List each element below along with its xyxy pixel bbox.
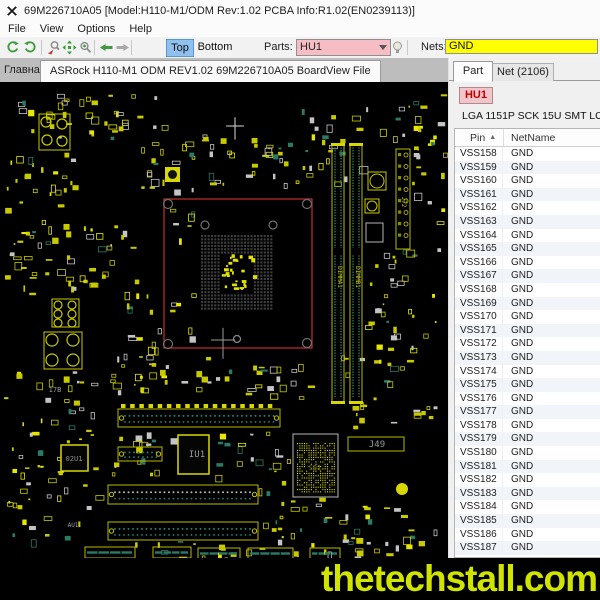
table-row[interactable]: VSS167GND — [455, 269, 600, 283]
parts-label: Parts: — [264, 37, 293, 58]
table-row[interactable]: VSS176GND — [455, 392, 600, 406]
table-row[interactable]: VSS171GND — [455, 324, 600, 338]
table-row[interactable]: VSS181GND — [455, 460, 600, 474]
column-netname[interactable]: NetName — [504, 129, 555, 146]
svg-text:AU1: AU1 — [68, 522, 79, 529]
table-row[interactable]: VSS163GND — [455, 215, 600, 229]
part-ref-badge[interactable]: HU1 — [459, 87, 493, 104]
rotate-ccw-icon[interactable] — [4, 39, 21, 56]
fit-view-icon[interactable] — [61, 39, 78, 56]
parts-value: HU1 — [300, 41, 322, 53]
svg-text:J49: J49 — [369, 440, 385, 450]
board-view[interactable]: IU102U1J49AU117BSB1DIMMA1DIMMB1J72 — [0, 82, 448, 600]
table-row[interactable]: VSS182GND — [455, 473, 600, 487]
svg-text:J72: J72 — [400, 197, 407, 208]
panel-tab-part[interactable]: Part — [453, 61, 493, 82]
zoom-part-icon[interactable] — [77, 39, 94, 56]
table-row[interactable]: VSS161GND — [455, 188, 600, 202]
table-row[interactable]: VSS158GND — [455, 147, 600, 161]
table-row[interactable]: VSS159GND — [455, 161, 600, 175]
toolbar: Top Bottom Parts: HU1 Nets: — [0, 37, 600, 59]
app-icon — [6, 5, 18, 17]
table-header[interactable]: Pin ▲ NetName — [455, 129, 600, 147]
toolbar-separator — [94, 40, 95, 55]
table-row[interactable]: VSS178GND — [455, 419, 600, 433]
table-row[interactable]: VSS179GND — [455, 432, 600, 446]
watermark-band: thetechstall.com — [0, 558, 600, 600]
chevron-down-icon — [379, 45, 387, 50]
nets-input[interactable] — [445, 39, 598, 54]
pin-net-table[interactable]: Pin ▲ NetName VSS158GNDVSS159GNDVSS160GN… — [454, 128, 600, 558]
svg-text:IU1: IU1 — [189, 450, 205, 460]
table-row[interactable]: VSS174GND — [455, 365, 600, 379]
table-row[interactable]: VSS160GND — [455, 174, 600, 188]
table-row[interactable]: VSS164GND — [455, 229, 600, 243]
table-row[interactable]: VSS175GND — [455, 378, 600, 392]
table-row[interactable]: VSS180GND — [455, 446, 600, 460]
history-back-icon[interactable] — [98, 39, 115, 56]
menu-help[interactable]: Help — [123, 23, 158, 35]
svg-text:DIMMA1: DIMMA1 — [336, 266, 343, 288]
tab-boardview-file[interactable]: ASRock H110-M1 ODM REV1.02 69M226710A05 … — [40, 60, 381, 82]
table-row[interactable]: VSS162GND — [455, 201, 600, 215]
side-panel: Part Net (2106) HU1 LGA 1151P SCK 15U SM… — [448, 58, 600, 600]
window-title: 69M226710A05 [Model:H110-M1/ODM Rev:1.02… — [24, 5, 415, 17]
table-row[interactable]: VSS165GND — [455, 242, 600, 256]
table-row[interactable]: VSS185GND — [455, 514, 600, 528]
top-layer-button[interactable]: Top — [166, 39, 194, 57]
tab-bar: Главная ASRock H110-M1 ODM REV1.02 69M22… — [0, 58, 448, 82]
svg-text:02U1: 02U1 — [66, 455, 83, 463]
menu-options[interactable]: Options — [71, 23, 121, 35]
table-row[interactable]: VSS170GND — [455, 310, 600, 324]
rotate-cw-icon[interactable] — [22, 39, 39, 56]
watermark-text: thetechstall.com — [321, 558, 600, 600]
pin-header-label: Pin — [470, 132, 485, 144]
table-row[interactable]: VSS166GND — [455, 256, 600, 270]
bottom-layer-button[interactable]: Bottom — [195, 39, 235, 55]
table-row[interactable]: VSS184GND — [455, 500, 600, 514]
table-row[interactable]: VSS172GND — [455, 337, 600, 351]
svg-text:17B: 17B — [49, 386, 62, 394]
app-window: 69M226710A05 [Model:H110-M1/ODM Rev:1.02… — [0, 0, 600, 600]
table-row[interactable]: VSS187GND — [455, 541, 600, 555]
nets-label: Nets: — [421, 37, 447, 58]
table-row[interactable]: VSS168GND — [455, 283, 600, 297]
zoom-select-icon[interactable] — [45, 39, 62, 56]
table-row[interactable]: VSS173GND — [455, 351, 600, 365]
table-row[interactable]: VSS177GND — [455, 405, 600, 419]
bulb-icon[interactable] — [389, 39, 406, 56]
svg-text:SB1: SB1 — [309, 464, 322, 472]
toolbar-separator — [407, 40, 408, 55]
menu-bar: File View Options Help — [0, 21, 600, 37]
svg-text:DIMMB1: DIMMB1 — [354, 266, 361, 288]
menu-file[interactable]: File — [2, 23, 32, 35]
table-row[interactable]: VSS183GND — [455, 487, 600, 501]
part-description: LGA 1151P SCK 15U SMT LOTES — [462, 110, 600, 122]
column-pin[interactable]: Pin ▲ — [455, 129, 504, 146]
parts-combobox[interactable]: HU1 — [296, 39, 391, 56]
table-row[interactable]: VSS169GND — [455, 297, 600, 311]
toolbar-separator — [131, 40, 132, 55]
board-svg[interactable]: IU102U1J49AU117BSB1DIMMA1DIMMB1J72 — [0, 82, 448, 600]
table-body: VSS158GNDVSS159GNDVSS160GNDVSS161GNDVSS1… — [455, 147, 600, 555]
title-bar: 69M226710A05 [Model:H110-M1/ODM Rev:1.02… — [0, 0, 600, 21]
menu-view[interactable]: View — [34, 23, 70, 35]
history-forward-icon[interactable] — [114, 39, 131, 56]
toolbar-separator — [41, 40, 42, 55]
sort-asc-icon: ▲ — [489, 134, 496, 141]
table-row[interactable]: VSS186GND — [455, 528, 600, 542]
panel-tab-net[interactable]: Net (2106) — [492, 63, 554, 81]
